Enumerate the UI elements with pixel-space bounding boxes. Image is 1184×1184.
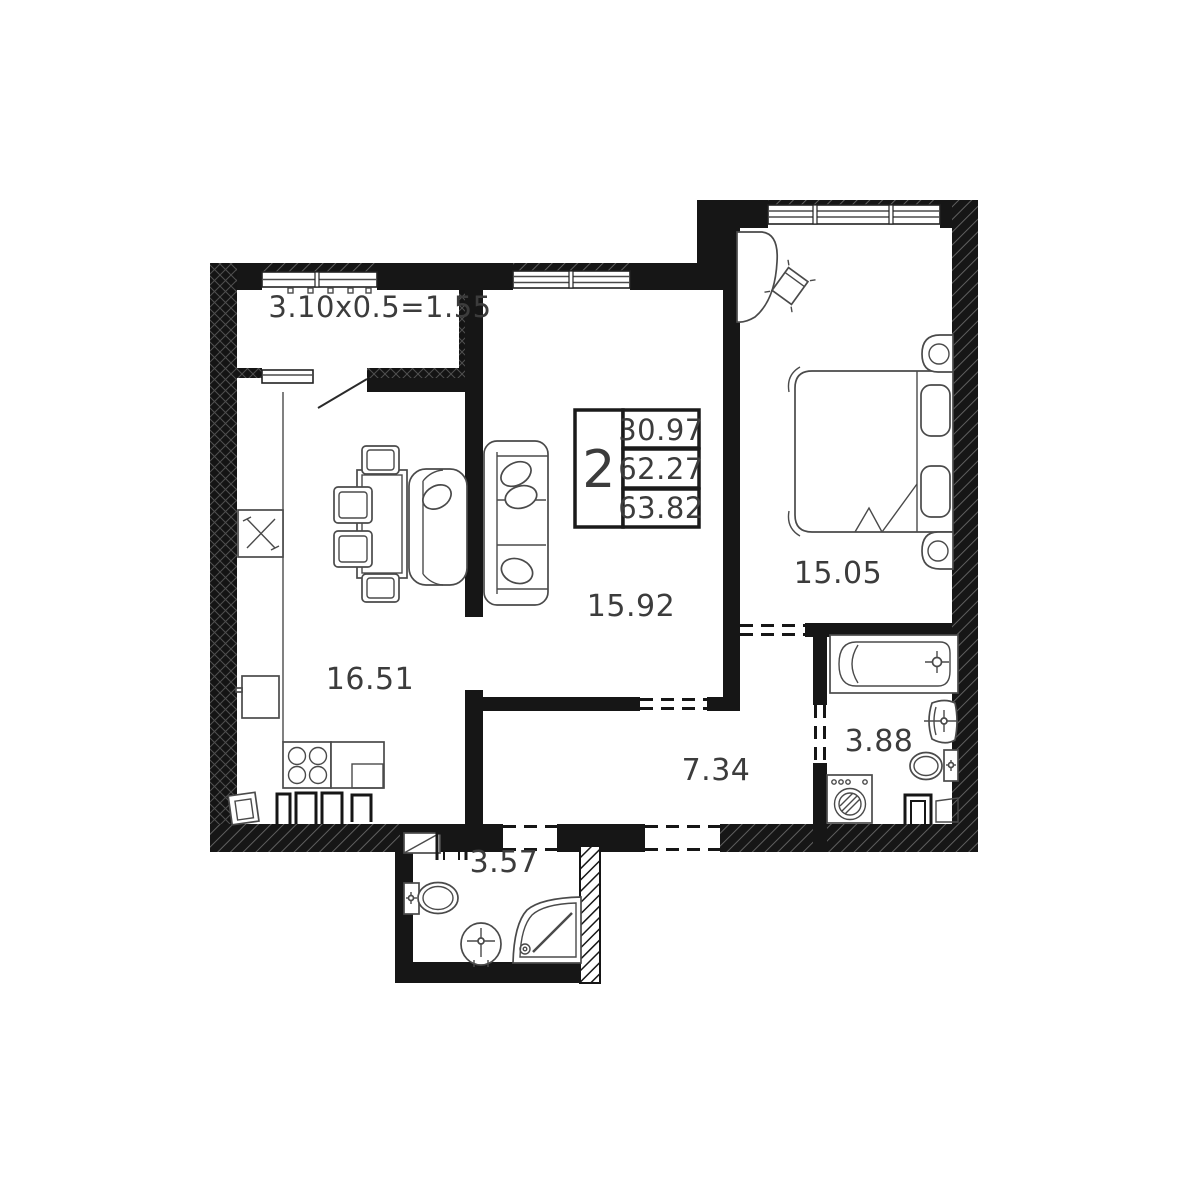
dining-chair-left-1 bbox=[334, 487, 372, 523]
wall-kitchen-hall bbox=[465, 690, 483, 852]
bedroom-window bbox=[768, 205, 940, 224]
wall-top-mid bbox=[377, 263, 513, 290]
room-label-kitchen: 16.51 bbox=[326, 662, 414, 697]
kitchen-balcony-window bbox=[262, 370, 313, 383]
wall-balcony-sep-right bbox=[367, 378, 467, 392]
living-hall-opening bbox=[640, 700, 707, 709]
pillow bbox=[921, 466, 950, 517]
wall-living-hall bbox=[483, 697, 640, 711]
corner-shower bbox=[513, 897, 581, 963]
room-label-wc: 3.57 bbox=[470, 845, 539, 880]
wall-balcony-sep-right-top bbox=[367, 368, 467, 378]
desk bbox=[737, 232, 777, 322]
kitchen-worktop bbox=[331, 742, 384, 788]
entrance-opening bbox=[645, 827, 720, 850]
pillow bbox=[921, 385, 950, 436]
floor-plan: 2 30.97 62.27 63.82 bbox=[0, 0, 1184, 1184]
living-furniture bbox=[484, 441, 548, 605]
legend-rooms-value: 2 bbox=[582, 440, 616, 500]
bedroom-furniture bbox=[737, 232, 953, 569]
bedroom-door-opening bbox=[740, 626, 805, 635]
armchair bbox=[409, 469, 467, 585]
wc-toilet bbox=[404, 883, 458, 915]
room-label-bedroom: 15.05 bbox=[794, 556, 882, 591]
kitchen-furniture bbox=[228, 392, 467, 825]
bathroom-sink bbox=[924, 701, 958, 743]
wall-bottom-right bbox=[720, 824, 978, 852]
floor-plan-page: 2 30.97 62.27 63.82 bbox=[0, 0, 1184, 1184]
sofa bbox=[484, 441, 548, 605]
kitchen-sink bbox=[238, 510, 283, 557]
room-label-bathroom: 3.88 bbox=[845, 724, 914, 759]
washing-machine bbox=[827, 775, 872, 823]
balcony-door bbox=[318, 379, 367, 408]
double-bed bbox=[788, 367, 953, 536]
wall-left bbox=[210, 263, 237, 852]
bathtub bbox=[830, 635, 958, 693]
stove bbox=[283, 742, 331, 788]
living-window bbox=[513, 271, 630, 288]
nightstand-top bbox=[922, 335, 953, 372]
wall-wc-bottom bbox=[395, 962, 600, 983]
legend-floor-value: 62.27 bbox=[618, 452, 704, 486]
wall-bedroom-top-left bbox=[697, 200, 768, 228]
room-label-hallway: 7.34 bbox=[682, 753, 751, 788]
wall-wc-right bbox=[580, 846, 600, 983]
room-label-balcony: 3.10x0.5=1.55 bbox=[268, 290, 491, 324]
room-label-living: 15.92 bbox=[587, 589, 675, 624]
bathroom-door-frame bbox=[905, 795, 958, 824]
toilet bbox=[910, 750, 958, 781]
wall-bath-left-lower bbox=[813, 763, 827, 852]
dining-chair-top bbox=[362, 446, 399, 474]
wall-bottom-left bbox=[210, 824, 400, 852]
bathroom-door-opening bbox=[816, 705, 825, 763]
wall-living-hall-end bbox=[707, 697, 737, 711]
wall-parapet-balcony bbox=[262, 263, 377, 272]
dining-chair-left-2 bbox=[334, 531, 372, 567]
wc-shelf bbox=[404, 833, 440, 853]
legend-total-value: 63.82 bbox=[618, 491, 704, 525]
wc-sink bbox=[461, 923, 501, 967]
wall-balcony-sep-left bbox=[237, 368, 262, 378]
legend-table: 2 30.97 62.27 63.82 bbox=[575, 410, 704, 527]
legend-living-value: 30.97 bbox=[618, 413, 704, 447]
wall-bath-left-upper bbox=[813, 637, 827, 705]
fridge bbox=[236, 676, 279, 718]
nightstand-bottom bbox=[922, 532, 953, 569]
wall-parapet-living bbox=[513, 263, 630, 271]
bar-stools bbox=[228, 792, 371, 824]
dining-chair-bottom bbox=[362, 574, 399, 602]
